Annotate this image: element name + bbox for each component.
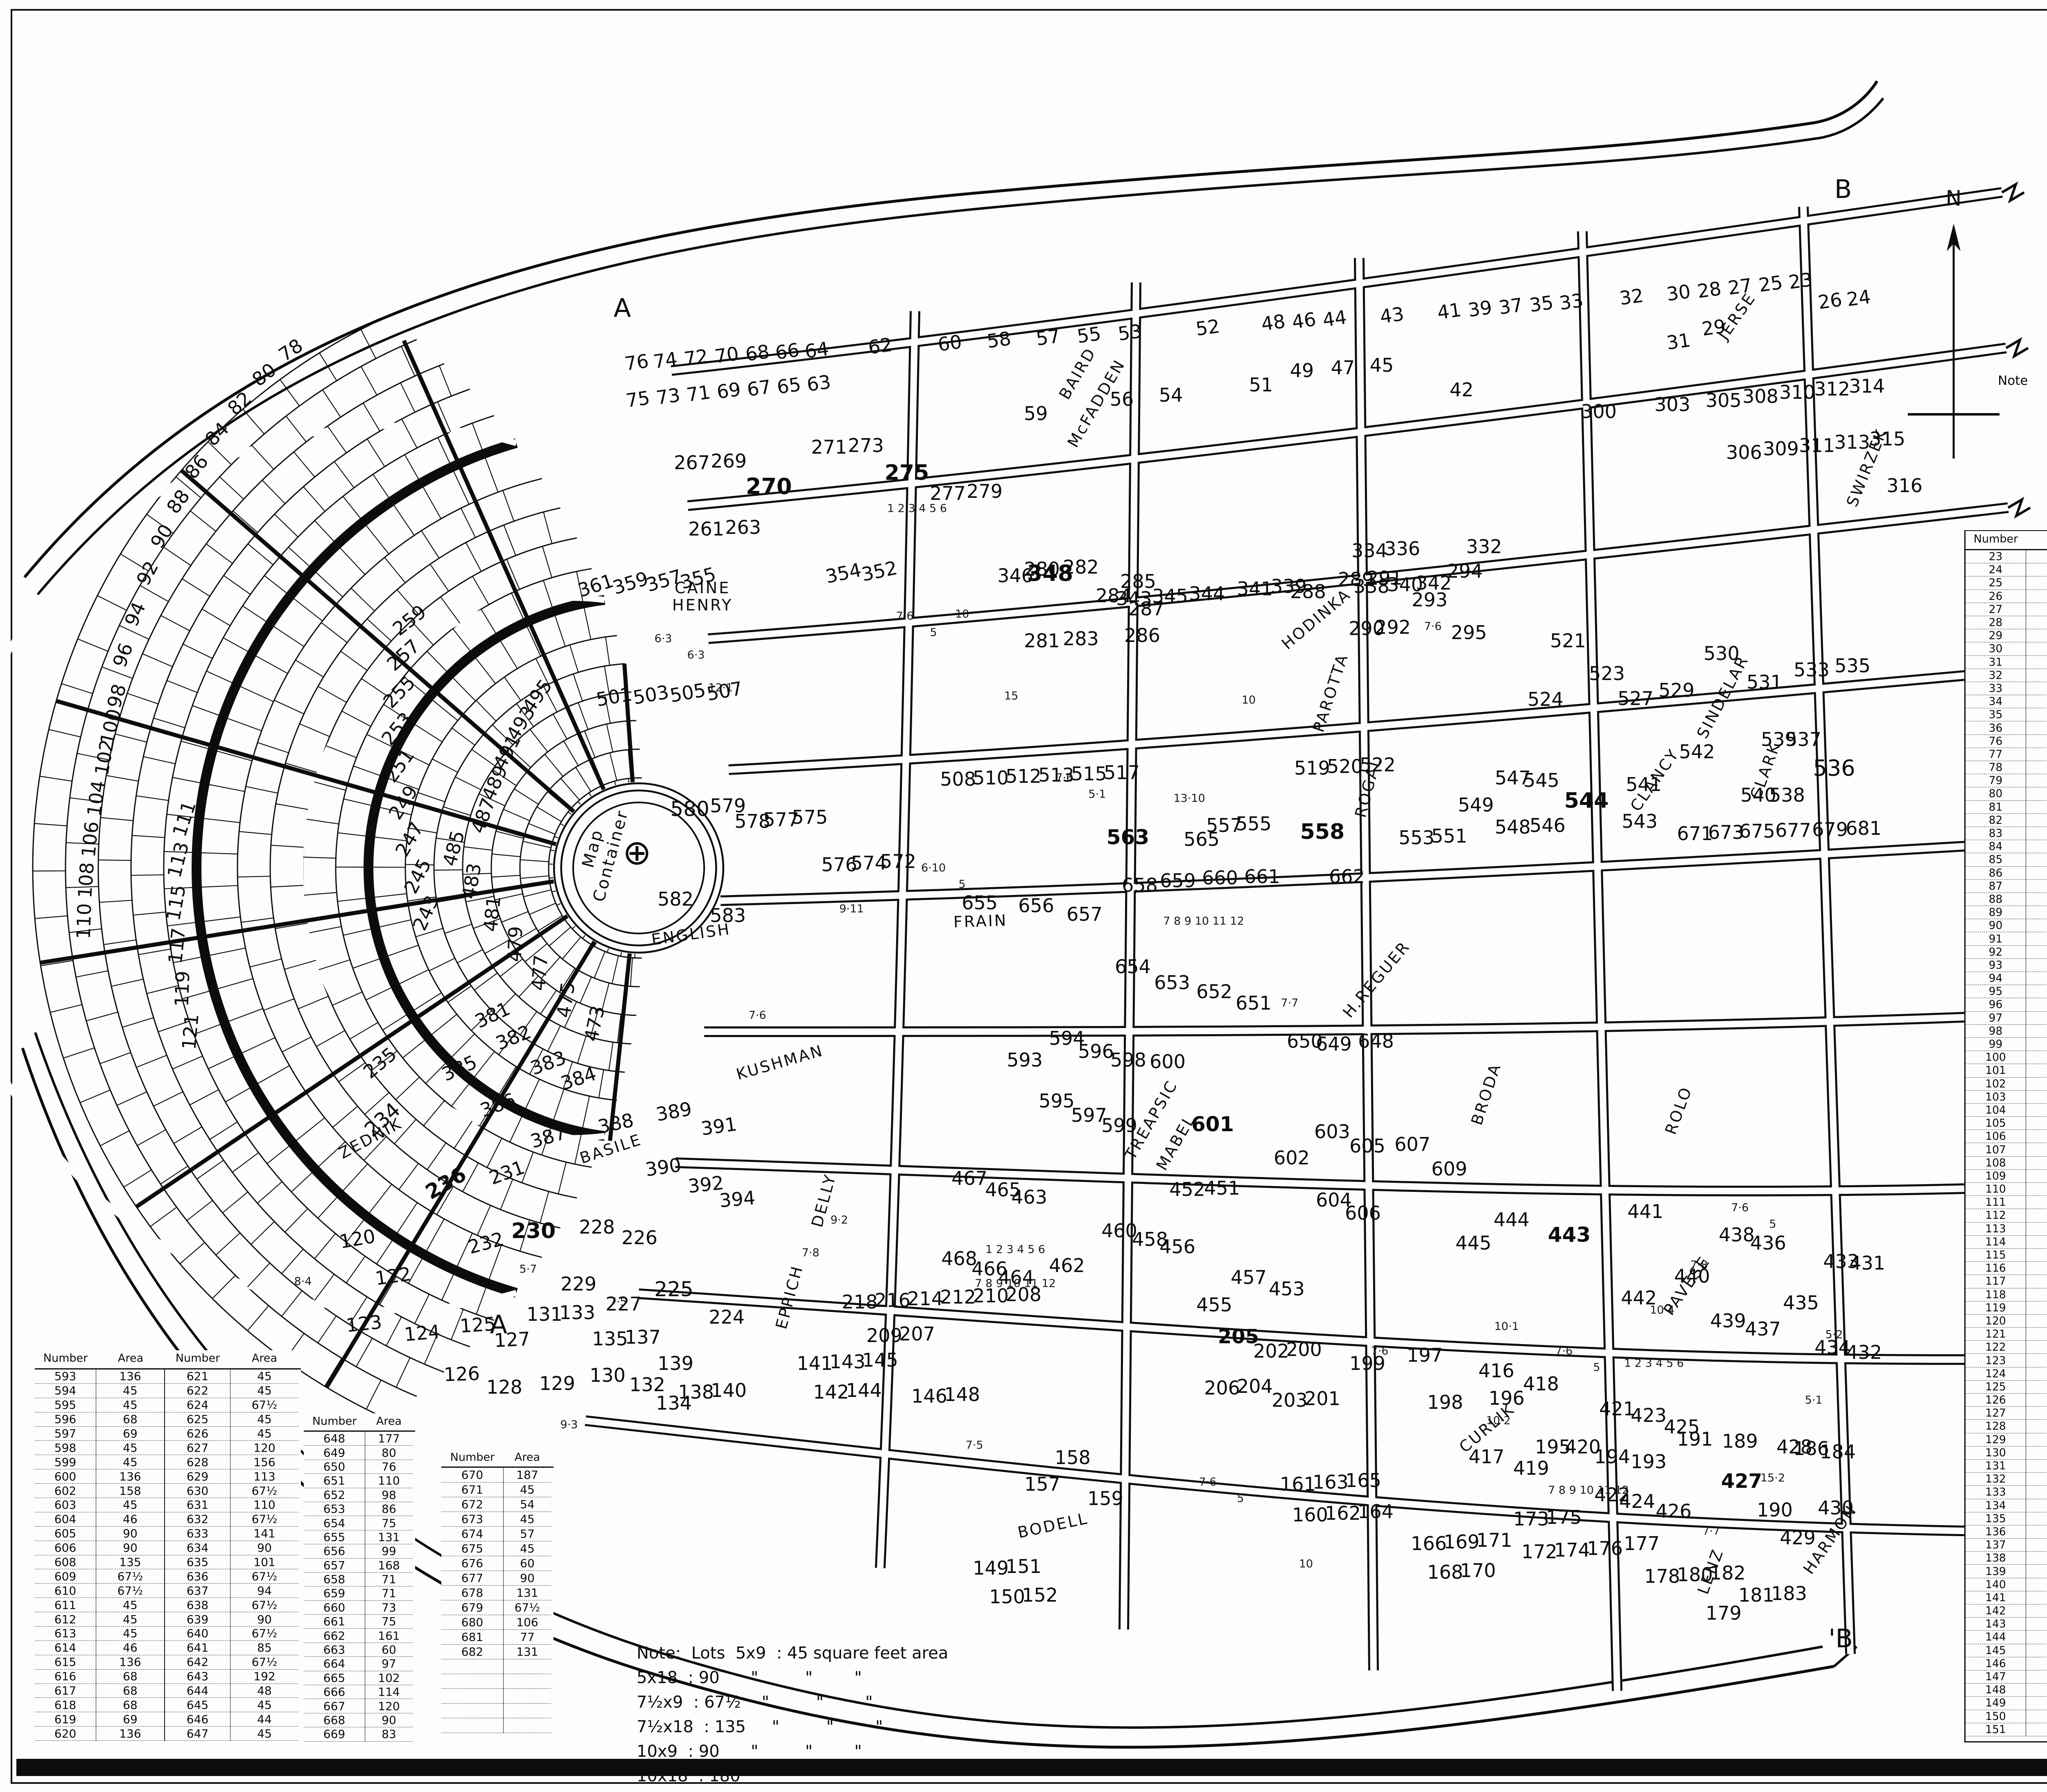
lot-number-cell: 612 xyxy=(35,1612,96,1627)
lot-dimension-label: 6·10 xyxy=(921,862,946,875)
lot-area-cell: 48 xyxy=(2026,814,2047,827)
lot-area-cell: 72 xyxy=(2026,1236,2047,1249)
lot-number-label: 599 xyxy=(1101,1114,1137,1137)
lot-dimension-label: 7 8 9 10 11 12 xyxy=(975,1277,1056,1290)
lot-area-cell: 79 xyxy=(2026,1025,2047,1038)
lot-number-label: 177 xyxy=(1624,1532,1660,1555)
lot-number-label: 37 xyxy=(1497,294,1524,319)
lot-number-cell: 130 xyxy=(1966,1446,2026,1460)
lot-area-cell: 177 xyxy=(365,1432,413,1446)
lot-number-label: 204 xyxy=(1237,1375,1273,1397)
lot-area-cell: 201 xyxy=(2026,1223,2047,1236)
lot-number-label: 598 xyxy=(1110,1049,1146,1071)
lot-area-cell: 45 xyxy=(96,1441,165,1455)
lot-number-label: 212 xyxy=(940,1286,976,1308)
lot-number-cell: 606 xyxy=(35,1541,96,1555)
lot-dimension-label: 7·5 xyxy=(966,1439,983,1452)
lot-area-cell: 67 xyxy=(2026,1697,2047,1710)
lot-number-cell: 95 xyxy=(1966,985,2026,998)
lot-number-label: 512 xyxy=(1005,765,1042,787)
lot-area-table-right: NumberAreaNumberAreaNumberAreaNumberArea… xyxy=(1964,530,2047,1742)
lot-size-note-prefix: Note: Lots xyxy=(637,1644,736,1663)
lot-number-label: 649 xyxy=(1316,1033,1352,1055)
lot-number-cell: 675 xyxy=(441,1541,504,1556)
lot-number-label: 443 xyxy=(1548,1223,1591,1247)
lot-area-cell: 90 xyxy=(2026,1604,2047,1618)
lot-number-cell: 679 xyxy=(441,1600,504,1615)
lot-number-cell: 23 xyxy=(1966,550,2026,563)
lot-area-cell: 45 xyxy=(2026,1644,2047,1657)
lot-number-label: 601 xyxy=(1191,1112,1234,1136)
lot-area-cell: 79 xyxy=(2026,1394,2047,1407)
lot-area-cell: 90 xyxy=(230,1612,298,1627)
lot-number-cell: 628 xyxy=(165,1455,230,1469)
lot-number-label: 338 xyxy=(1353,575,1390,597)
lot-number-cell: 624 xyxy=(165,1398,230,1412)
lot-area-cell: 71 xyxy=(365,1586,413,1600)
lot-number-cell: 604 xyxy=(35,1512,96,1527)
lot-area-cell: 67 xyxy=(2026,1618,2047,1631)
lot-dimension-label: 9·3 xyxy=(560,1419,578,1431)
lot-number-label: 456 xyxy=(1159,1236,1195,1258)
lot-area-cell: 136 xyxy=(96,1469,165,1484)
lot-number-cell: 90 xyxy=(1966,919,2026,932)
lot-number-label: 481 xyxy=(479,895,505,933)
lot-dimension-label: 5 xyxy=(958,878,965,891)
lot-number-cell: 91 xyxy=(1966,932,2026,945)
lot-number-cell: 593 xyxy=(35,1369,96,1384)
lot-number-label: 555 xyxy=(1236,813,1272,835)
lot-number-label: 306 xyxy=(1726,441,1762,463)
lot-number-cell: 149 xyxy=(1966,1697,2026,1710)
lot-number-cell: 682 xyxy=(441,1645,504,1659)
lot-number-label: 580 xyxy=(670,797,709,821)
lot-area-cell: 110 xyxy=(365,1474,413,1488)
lot-number-cell: 677 xyxy=(441,1571,504,1586)
lot-area-cell: 68 xyxy=(96,1698,165,1712)
lot-number-label: 146 xyxy=(911,1385,947,1407)
lot-number-label: 47 xyxy=(1331,357,1355,379)
lot-number-label: 42 xyxy=(1450,379,1474,401)
lot-area-cell: 49 xyxy=(2026,629,2047,642)
lot-dimension-label: 12·1 xyxy=(708,682,733,694)
lot-dimension-label: 7 8 9 10 11 12 xyxy=(1163,915,1244,928)
lot-number-label: 558 xyxy=(1300,820,1345,844)
lot-number-cell: 658 xyxy=(304,1573,365,1586)
lot-number-cell: 109 xyxy=(1966,1170,2026,1183)
lot-area-cell: 67½ xyxy=(504,1600,551,1615)
lot-number-label: 149 xyxy=(973,1557,1009,1579)
lot-area-cell xyxy=(504,1674,551,1689)
lot-number-cell: 101 xyxy=(1966,1064,2026,1077)
lot-number-cell: 681 xyxy=(441,1630,504,1645)
lot-number-label: 308 xyxy=(1742,385,1778,407)
lot-dimension-label: 7·7 xyxy=(1281,997,1299,1010)
lot-number-label: 479 xyxy=(503,926,526,963)
lot-dimension-label: 6·3 xyxy=(687,649,705,662)
lot-area-cell: 90 xyxy=(365,1713,413,1727)
lot-number-cell: 617 xyxy=(35,1684,96,1698)
lot-area-cell xyxy=(504,1689,551,1704)
lot-number-label: 209 xyxy=(866,1324,902,1347)
lot-area-cell: 70 xyxy=(2026,840,2047,853)
lot-number-cell: 32 xyxy=(1966,669,2026,682)
lot-area-cell: 54 xyxy=(504,1497,551,1512)
lot-number-label: 261 xyxy=(688,518,724,540)
lot-number-cell: 680 xyxy=(441,1615,504,1630)
lot-number-cell: 79 xyxy=(1966,774,2026,787)
lot-area-cell: 79 xyxy=(2026,1051,2047,1064)
lot-number-label: 179 xyxy=(1706,1602,1742,1624)
lot-area-cell: 87 xyxy=(2026,1525,2047,1539)
lot-number-label: 184 xyxy=(1820,1441,1856,1463)
lot-number-label: 207 xyxy=(899,1323,935,1345)
lot-area-cell: 52 xyxy=(2026,1209,2047,1222)
lot-area-cell: 52 xyxy=(2026,867,2047,880)
lot-area-cell: 90 xyxy=(96,1541,165,1555)
lot-area-cell: 69 xyxy=(2026,576,2047,590)
lot-number-cell: 31 xyxy=(1966,656,2026,669)
lot-area-cell: 45 xyxy=(230,1427,298,1441)
lot-number-label: 658 xyxy=(1122,874,1158,896)
lot-area-cell: 141 xyxy=(230,1527,298,1541)
lot-number-cell: 119 xyxy=(1966,1302,2026,1315)
lot-area-cell: 158 xyxy=(96,1484,165,1498)
lot-number-label: 106 xyxy=(77,820,103,859)
lot-number-cell: 600 xyxy=(35,1469,96,1484)
lot-number-label: 339 xyxy=(1271,575,1307,597)
lot-area-cell: 45 xyxy=(230,1384,298,1398)
lot-area-cell: 94 xyxy=(230,1584,298,1598)
lot-number-cell: 626 xyxy=(165,1427,230,1441)
lot-number-cell: 678 xyxy=(441,1586,504,1600)
lot-dimension-label: 9·11 xyxy=(839,903,864,915)
lot-number-label: 517 xyxy=(1104,762,1140,784)
lot-area-cell: 180 xyxy=(2026,1670,2047,1684)
lot-number-cell: 106 xyxy=(1966,1130,2026,1143)
lot-number-label: 150 xyxy=(989,1586,1025,1608)
lot-number-label: 653 xyxy=(1154,972,1190,994)
lot-number-cell: 652 xyxy=(304,1488,365,1502)
lot-area-cell xyxy=(504,1659,551,1674)
lot-number-label: 225 xyxy=(654,1277,693,1301)
lot-area-cell: 50 xyxy=(2026,695,2047,708)
lot-number-label: 606 xyxy=(1345,1202,1381,1224)
map-scale: Scale 1"- 20' xyxy=(2041,275,2047,293)
lot-number-label: 279 xyxy=(967,480,1003,502)
lot-number-cell: 115 xyxy=(1966,1249,2026,1262)
lot-number-cell: 634 xyxy=(165,1541,230,1555)
lot-area-cell: 98 xyxy=(365,1488,413,1502)
lot-number-label: 143 xyxy=(829,1351,865,1373)
lot-size-dim: 7½x18 xyxy=(637,1717,704,1736)
lot-number-cell: 671 xyxy=(441,1482,504,1497)
lot-number-label: 348 xyxy=(1027,560,1073,586)
lot-number-cell: 613 xyxy=(35,1627,96,1641)
lot-number-label: 58 xyxy=(985,327,1012,353)
lot-area-cell: 45 xyxy=(504,1512,551,1527)
lot-number-cell: 97 xyxy=(1966,1012,2026,1025)
lot-number-label: 419 xyxy=(1513,1457,1549,1479)
lot-area-cell: 53 xyxy=(2026,932,2047,945)
lot-number-label: 444 xyxy=(1493,1209,1530,1231)
lot-number-label: 57 xyxy=(1035,325,1061,350)
lot-number-label: 602 xyxy=(1274,1147,1310,1169)
lot-number-cell: 110 xyxy=(1966,1183,2026,1196)
lot-dimension-label: 7·6 xyxy=(1424,620,1442,633)
lot-number-cell: 128 xyxy=(1966,1420,2026,1433)
lot-number-cell: 105 xyxy=(1966,1117,2026,1130)
lot-size-dim: 5x18 xyxy=(637,1668,688,1687)
lot-size-dim: 10x9 xyxy=(637,1742,688,1761)
lot-number-label: 133 xyxy=(559,1302,595,1324)
lot-number-label: 535 xyxy=(1835,655,1871,677)
lot-number-label: 173 xyxy=(1513,1508,1549,1530)
path-letter-label: 'B xyxy=(1828,1624,1853,1654)
lot-number-label: 451 xyxy=(1204,1177,1240,1199)
lot-number-label: 582 xyxy=(657,888,694,910)
lot-number-label: 533 xyxy=(1794,659,1830,681)
lot-area-cell: 80 xyxy=(2026,985,2047,998)
lot-dimension-label: 8·4 xyxy=(294,1275,312,1288)
lot-number-cell: 25 xyxy=(1966,576,2026,590)
lot-number-label: 524 xyxy=(1527,688,1563,710)
lot-number-cell: 146 xyxy=(1966,1657,2026,1670)
lot-number-label: 429 xyxy=(1780,1527,1816,1549)
lot-number-label: 229 xyxy=(560,1273,596,1295)
lot-number-cell: 94 xyxy=(1966,972,2026,985)
lot-number-label: 462 xyxy=(1049,1254,1085,1277)
lot-area-cell: 196 xyxy=(2026,787,2047,800)
lot-number-label: 59 xyxy=(1024,402,1048,425)
lot-number-label: 174 xyxy=(1554,1539,1590,1561)
lot-number-label: 71 xyxy=(685,381,712,406)
lot-number-label: 523 xyxy=(1589,662,1625,685)
lot-area-cell: 90 xyxy=(504,1571,551,1586)
lot-number-label: 130 xyxy=(590,1364,626,1386)
lot-number-label: 121 xyxy=(178,1013,203,1051)
lot-area-cell: 75 xyxy=(365,1516,413,1530)
lot-area-cell: 45 xyxy=(96,1398,165,1412)
lot-number-cell: 659 xyxy=(304,1586,365,1600)
lot-number-label: 64 xyxy=(803,337,830,363)
lot-area-cell: 45 xyxy=(96,1498,165,1512)
lot-number-cell: 125 xyxy=(1966,1381,2026,1394)
lot-number-cell: 610 xyxy=(35,1584,96,1598)
lot-number-cell: 87 xyxy=(1966,880,2026,893)
lot-area-cell: 80 xyxy=(2026,1249,2047,1262)
lot-number-cell: 104 xyxy=(1966,1104,2026,1117)
lot-number-label: 28 xyxy=(1696,277,1722,303)
lot-number-cell: 111 xyxy=(1966,1196,2026,1209)
lot-number-label: 529 xyxy=(1658,679,1695,701)
column-header: Number xyxy=(1966,531,2026,549)
lot-area-cell: 120 xyxy=(365,1699,413,1713)
lot-number-cell: 596 xyxy=(35,1412,96,1427)
lot-number-cell: 33 xyxy=(1966,682,2026,695)
lot-dimension-label: 5 xyxy=(930,626,937,639)
lot-number-label: 431 xyxy=(1849,1252,1885,1274)
lot-number-cell: 602 xyxy=(35,1484,96,1498)
lot-area-cell: 67½ xyxy=(230,1598,298,1612)
lot-area-cell: 52 xyxy=(2026,1302,2047,1315)
lot-number-cell: 26 xyxy=(1966,590,2026,603)
lot-number-cell: 117 xyxy=(1966,1275,2026,1288)
lot-number-cell: 30 xyxy=(1966,642,2026,655)
lot-number-cell: 138 xyxy=(1966,1552,2026,1565)
lot-area-cell: 46 xyxy=(96,1512,165,1527)
lot-number-label: 281 xyxy=(1024,630,1060,652)
lot-number-label: 531 xyxy=(1747,671,1783,693)
lot-number-label: 673 xyxy=(1708,821,1744,843)
lot-area-cell: 120 xyxy=(230,1441,298,1455)
lot-number-label: 346 xyxy=(997,565,1033,587)
map-container-symbol: ⊕ xyxy=(623,832,651,872)
lot-number-label: 216 xyxy=(874,1289,911,1311)
lot-number-label: 201 xyxy=(1304,1388,1340,1410)
lot-area-cell: 49 xyxy=(2026,563,2047,576)
lot-number-cell: 84 xyxy=(1966,840,2026,853)
lot-number-cell: 662 xyxy=(304,1629,365,1643)
lot-number-label: 165 xyxy=(1345,1469,1381,1491)
lot-number-label: 609 xyxy=(1431,1158,1467,1180)
column-header: Area xyxy=(2026,531,2047,549)
lot-area-cell: 181 xyxy=(2026,1367,2047,1381)
lot-area-cell: 150 xyxy=(2026,1012,2047,1025)
lot-number-label: 294 xyxy=(1447,560,1483,582)
lot-number-label: 228 xyxy=(579,1216,615,1238)
lot-number-cell xyxy=(441,1689,504,1704)
lot-number-cell: 143 xyxy=(1966,1618,2026,1631)
lot-number-cell: 83 xyxy=(1966,827,2026,840)
lot-area-cell: 67 xyxy=(2026,1473,2047,1486)
lot-number-label: 455 xyxy=(1196,1294,1232,1316)
lot-dimension-label: 5·7 xyxy=(520,1263,537,1276)
lot-number-cell: 605 xyxy=(35,1527,96,1541)
lot-number-cell: 134 xyxy=(1966,1499,2026,1512)
lot-number-label: 305 xyxy=(1706,389,1742,411)
lot-number-label: 181 xyxy=(1738,1584,1774,1606)
lot-number-label: 48 xyxy=(1260,310,1286,335)
lot-area-cell: 67½ xyxy=(230,1569,298,1584)
lot-number-label: 438 xyxy=(1719,1224,1755,1246)
lot-number-label: 176 xyxy=(1587,1537,1623,1559)
family-name-label: FRAIN xyxy=(953,911,1008,931)
north-label: N xyxy=(1946,186,1962,211)
lot-area-cell xyxy=(504,1718,551,1733)
lot-number-label: 203 xyxy=(1272,1389,1308,1411)
lot-number-cell: 647 xyxy=(165,1726,230,1741)
lot-number-label: 423 xyxy=(1631,1404,1667,1426)
lot-dimension-label: 1 2 3 4 5 6 xyxy=(887,502,947,515)
lot-area-cell: 80 xyxy=(2026,1591,2047,1604)
lot-number-label: 416 xyxy=(1478,1360,1514,1382)
plat-map-sheet: 7674727068666462605857555352484644434139… xyxy=(0,0,2047,1792)
lot-number-label: 198 xyxy=(1427,1391,1463,1413)
lot-dimension-label: 7·8 xyxy=(802,1247,820,1259)
lot-number-label: 49 xyxy=(1290,359,1314,382)
lot-number-label: 194 xyxy=(1594,1446,1630,1468)
lot-number-label: 135 xyxy=(592,1328,628,1350)
lot-number-label: 453 xyxy=(1269,1278,1305,1300)
lot-area-cell: 71 xyxy=(2026,1381,2047,1394)
lot-number-cell: 656 xyxy=(304,1544,365,1558)
lot-area-cell: 102 xyxy=(365,1671,413,1685)
lot-number-cell: 92 xyxy=(1966,946,2026,959)
lot-area-cell: 67½ xyxy=(96,1584,165,1598)
lot-number-cell: 80 xyxy=(1966,787,2026,800)
lot-number-cell: 112 xyxy=(1966,1209,2026,1222)
lot-number-label: 600 xyxy=(1150,1051,1186,1073)
lot-area-cell: 45 xyxy=(2026,1512,2047,1525)
lot-area-cell: 45 xyxy=(2026,1710,2047,1723)
column-header: Area xyxy=(96,1350,165,1368)
lot-area-cell: 45 xyxy=(2026,1499,2047,1512)
lot-number-label: 39 xyxy=(1466,296,1493,321)
lot-number-label: 578 xyxy=(734,810,770,832)
lot-number-label: 142 xyxy=(813,1381,849,1403)
lot-number-cell: 129 xyxy=(1966,1433,2026,1446)
lot-dimension-label: 13·10 xyxy=(1173,792,1205,805)
lot-number-cell: 599 xyxy=(35,1455,96,1469)
lot-number-cell: 100 xyxy=(1966,1051,2026,1064)
lot-area-subtable-b: NumberArea670187671456725467345674576754… xyxy=(441,1449,554,1738)
lot-number-cell: 27 xyxy=(1966,603,2026,616)
lot-number-cell: 649 xyxy=(304,1446,365,1460)
lot-number-label: 521 xyxy=(1550,630,1586,652)
lot-number-cell: 102 xyxy=(1966,1078,2026,1091)
lot-number-cell xyxy=(441,1718,504,1733)
lot-area-cell: 45 xyxy=(230,1698,298,1712)
lot-area-cell: 45 xyxy=(2026,1565,2047,1578)
lot-number-label: 200 xyxy=(1286,1338,1322,1360)
lot-number-label: 197 xyxy=(1407,1344,1443,1366)
lot-number-cell: 676 xyxy=(441,1556,504,1571)
lot-area-cell: 136 xyxy=(96,1369,165,1384)
family-name-label: CAINE xyxy=(675,579,730,597)
lot-dimension-label: 7·6 xyxy=(1731,1202,1749,1214)
lot-number-cell: 99 xyxy=(1966,1038,2026,1051)
lot-number-cell: 635 xyxy=(165,1555,230,1570)
lot-area-cell: 48 xyxy=(230,1684,298,1698)
lot-number-cell: 641 xyxy=(165,1641,230,1655)
lot-number-label: 548 xyxy=(1495,816,1531,838)
lot-number-label: 508 xyxy=(940,768,976,790)
lot-area-cell: 131 xyxy=(365,1530,413,1544)
lot-area-cell: 83 xyxy=(365,1727,413,1741)
lot-number-cell: 657 xyxy=(304,1559,365,1573)
lot-area-cell: 45 xyxy=(96,1384,165,1398)
column-header: Number xyxy=(304,1413,365,1430)
lot-number-cell: 35 xyxy=(1966,708,2026,721)
lot-number-label: 168 xyxy=(1427,1561,1463,1583)
lot-dimension-label: 7·6 xyxy=(1199,1476,1217,1489)
lot-number-label: 206 xyxy=(1204,1377,1240,1399)
lot-number-cell: 139 xyxy=(1966,1565,2026,1578)
lot-number-cell: 76 xyxy=(1966,735,2026,748)
lot-number-cell: 88 xyxy=(1966,893,2026,906)
lot-number-label: 275 xyxy=(885,461,929,485)
lot-number-label: 661 xyxy=(1244,865,1280,888)
lot-number-label: 659 xyxy=(1160,870,1196,892)
lot-area-cell: 67 xyxy=(2026,1460,2047,1473)
lot-number-cell: 640 xyxy=(165,1627,230,1641)
lot-number-cell: 29 xyxy=(1966,629,2026,642)
lot-number-label: 66 xyxy=(774,339,800,364)
lot-area-cell: 168 xyxy=(365,1559,413,1573)
lot-number-label: 131 xyxy=(526,1303,563,1325)
lot-area-cell: 192 xyxy=(230,1670,298,1684)
